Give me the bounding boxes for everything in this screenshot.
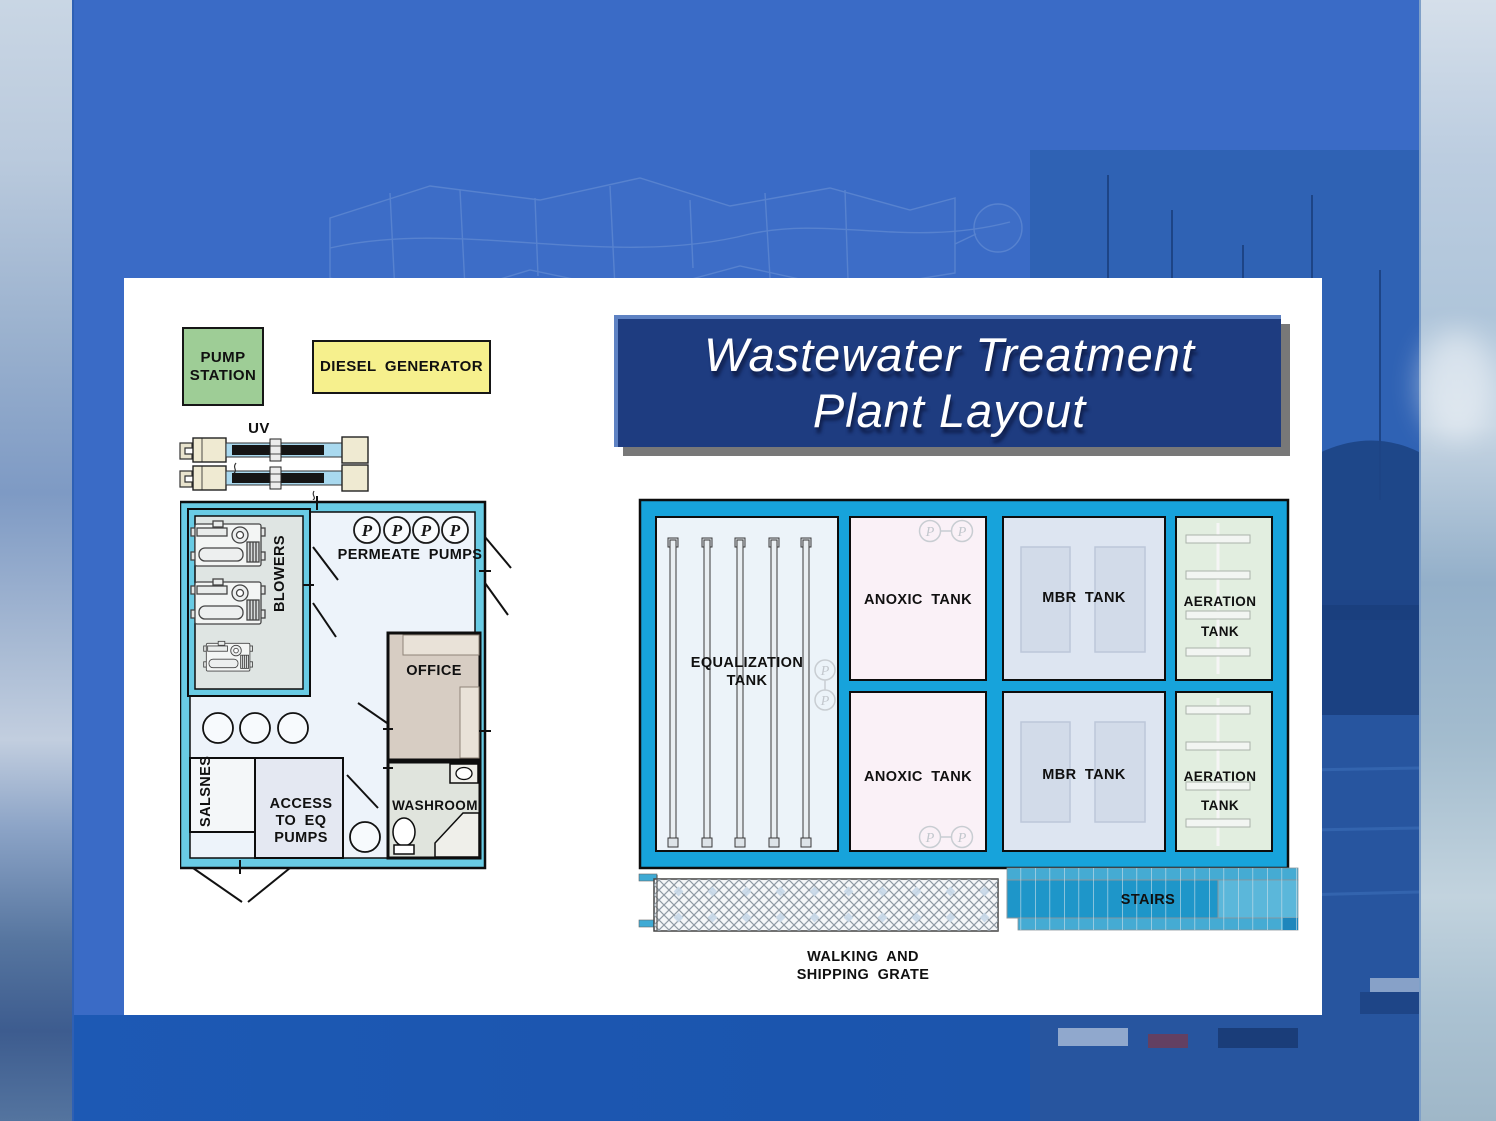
- uv-units-drawing: [172, 430, 372, 500]
- office-label: OFFICE: [406, 663, 462, 679]
- equalization-label-1: EQUALIZATION: [691, 655, 803, 671]
- building-plan-drawing: BLOWERS P P P P PERMEATE PUMPS OFFICE: [180, 492, 520, 907]
- blower-unit-1: [191, 521, 265, 566]
- pump-station-label-1: PUMP: [201, 349, 246, 367]
- title-banner: Wastewater Treatment Plant Layout: [614, 315, 1281, 447]
- aeration-bottom-label-2: TANK: [1201, 798, 1239, 813]
- office-cabinet: [460, 687, 479, 758]
- slide: Wastewater Treatment Plant Layout PUMP S…: [0, 0, 1496, 1121]
- stairs-label: STAIRS: [1121, 892, 1176, 908]
- grate-label-2: SHIPPING GRATE: [797, 967, 930, 983]
- blower-unit-2: [191, 579, 265, 624]
- diesel-generator-label: DIESEL GENERATOR: [320, 358, 483, 376]
- content-panel: Wastewater Treatment Plant Layout PUMP S…: [124, 278, 1322, 1015]
- anoxic-top-label: ANOXIC TANK: [864, 592, 972, 608]
- anoxic-bottom-label: ANOXIC TANK: [864, 769, 972, 785]
- pump-symbol: P: [449, 521, 461, 540]
- right-photo-strip: [1419, 0, 1496, 1121]
- diesel-generator-box: DIESEL GENERATOR: [312, 340, 491, 394]
- pump-symbol: P: [925, 525, 935, 540]
- salsnes-label: SALSNES: [198, 756, 214, 827]
- office-counter: [403, 635, 479, 655]
- aeration-top-label-1: AERATION: [1184, 594, 1257, 609]
- equalization-label-2: TANK: [727, 673, 768, 689]
- title-line-2: Plant Layout: [813, 383, 1086, 439]
- access-label-2: TO EQ: [276, 813, 327, 829]
- uv-unit-top: [180, 437, 368, 463]
- pump-station-box: PUMP STATION: [182, 327, 264, 406]
- mbr-bottom-label: MBR TANK: [1042, 767, 1126, 783]
- aeration-bottom-label-1: AERATION: [1184, 769, 1257, 784]
- plant-layout-drawing: EQUALIZATION TANK P P ANOXIC TANK ANOXIC…: [629, 490, 1304, 1000]
- pump-symbol: P: [361, 521, 373, 540]
- pump-symbol: P: [820, 694, 830, 709]
- uv-unit-bottom: [180, 465, 368, 491]
- mbr-top-label: MBR TANK: [1042, 590, 1126, 606]
- grate-label-1: WALKING AND: [807, 949, 919, 965]
- pump-symbol: P: [820, 664, 830, 679]
- blowers-label: BLOWERS: [272, 535, 288, 612]
- pump-station-label-2: STATION: [190, 367, 256, 385]
- toilet: [393, 818, 415, 846]
- access-label-3: PUMPS: [274, 830, 328, 846]
- access-label-1: ACCESS: [270, 796, 333, 812]
- title-line-1: Wastewater Treatment: [704, 327, 1195, 383]
- blower-unit-3: [204, 641, 253, 671]
- washroom-label: WASHROOM: [392, 798, 478, 813]
- permeate-pumps-label: PERMEATE PUMPS: [338, 547, 483, 563]
- pump-symbol: P: [391, 521, 403, 540]
- pump-symbol: P: [957, 831, 967, 846]
- pump-symbol: P: [420, 521, 432, 540]
- cloud-haze: [1419, 330, 1496, 440]
- pump-symbol: P: [957, 525, 967, 540]
- left-photo-strip: [0, 0, 74, 1121]
- walking-grate: [639, 874, 998, 931]
- aeration-top-label-2: TANK: [1201, 624, 1239, 639]
- stairs: STAIRS: [1007, 868, 1298, 930]
- pump-symbol: P: [925, 831, 935, 846]
